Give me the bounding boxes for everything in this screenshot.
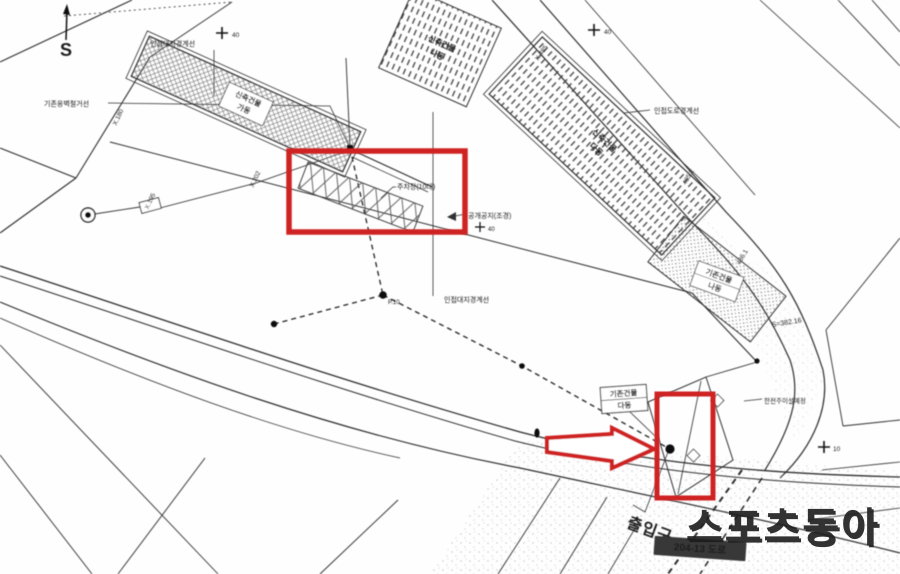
north-compass-icon: S xyxy=(60,4,72,60)
elevation-mark-1: X.180 xyxy=(112,108,126,127)
adjacent-road-boundary-label: 인접도로경계선 xyxy=(654,106,699,115)
leader-arrowhead xyxy=(447,212,456,221)
leader-lines xyxy=(108,50,762,512)
site-plan-image: 신축건물 가동 신축건물 나동 신축건물 다동 기존건물 나동 xyxy=(0,0,900,574)
tree-size-2: 40 xyxy=(604,29,612,36)
site-plan-svg: 신축건물 가동 신축건물 나동 신축건물 다동 기존건물 나동 xyxy=(0,0,900,574)
exist-da-label-line1: 기존건물 xyxy=(609,387,637,399)
tree-size-3: 40 xyxy=(488,227,495,233)
building-exist-da-label: 기존건물 다동 xyxy=(600,384,648,413)
benchmark-symbol-center xyxy=(85,212,91,218)
watermark-text: 스포츠동아 xyxy=(688,508,882,552)
open-space-label: 공개공지(조경) xyxy=(468,211,511,220)
exist-da-label-line2: 다동 xyxy=(617,400,632,411)
news-watermark: 스포츠동아 스포츠동아 xyxy=(686,506,882,552)
tree-size-1: 40 xyxy=(232,32,240,39)
utility-pole-note-label: 한전주이설예정 xyxy=(764,396,806,405)
retaining-wall-note-label: 기존옹벽철거선 xyxy=(44,99,89,108)
adjacent-site-boundary-label-mid: 인접대지경계선 xyxy=(444,295,489,304)
parking-strip xyxy=(298,162,423,232)
tree-size-4: 10 xyxy=(833,446,841,453)
compass-s-label: S xyxy=(60,40,72,60)
elevation-mark-3: X.202 xyxy=(249,170,263,189)
building-new-b: 신축건물 나동 xyxy=(379,0,502,107)
parking-label: 주차장(10대) xyxy=(397,182,435,191)
adjacent-site-boundary-label-top: 인접대지경계선 xyxy=(150,39,195,48)
junction-mark-label: P.10 xyxy=(388,300,400,306)
